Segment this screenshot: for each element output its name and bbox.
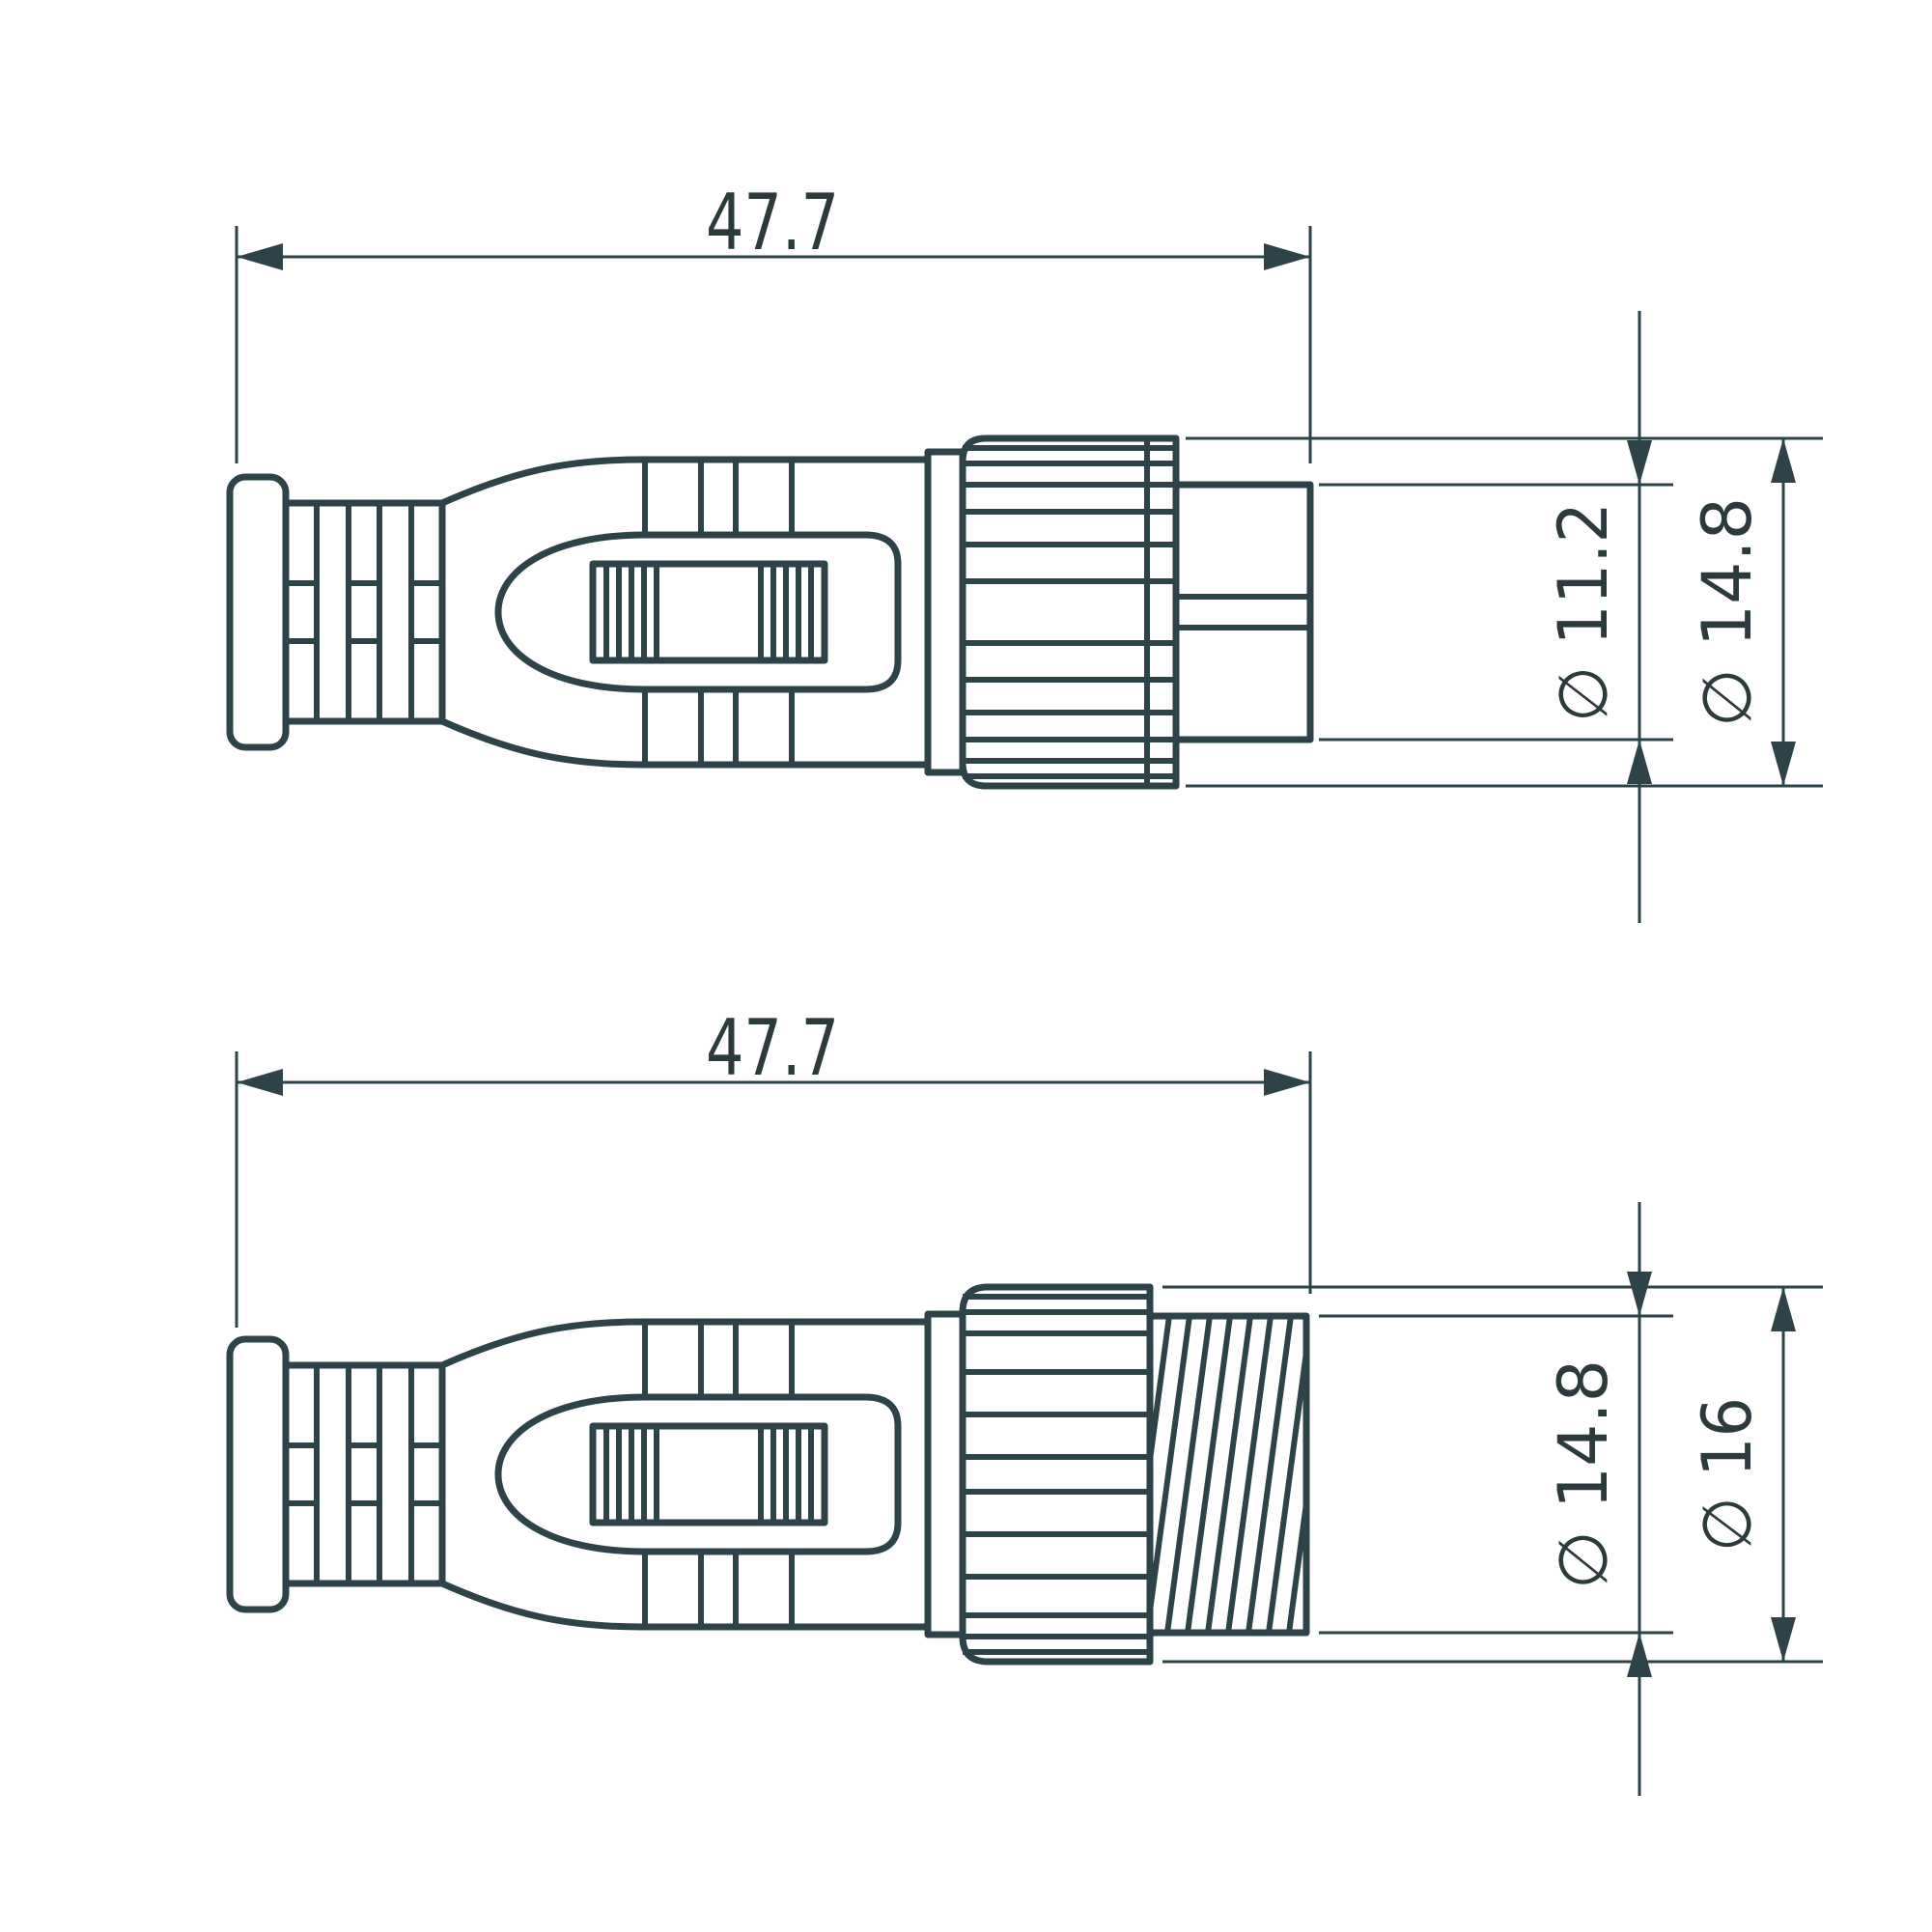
- body-ridges: [645, 1322, 792, 1627]
- top-length-dimension: 47.7: [237, 178, 1310, 463]
- technical-drawing-page: 47.7: [0, 0, 1932, 1932]
- bottom-view: 47.7: [230, 1003, 1823, 1796]
- down-arrow-icon: [1771, 742, 1796, 786]
- connector-dimension-drawing: 47.7: [0, 0, 1932, 1932]
- latch: [498, 535, 898, 689]
- top-length-dimension-label: 47.7: [706, 178, 839, 267]
- body-ridges: [645, 460, 792, 765]
- thread-hatching: [1086, 1316, 1352, 1633]
- bottom-connector: [230, 1287, 1352, 1662]
- top-outer-diameter-label: ∅ 14.8: [1688, 497, 1767, 727]
- bottom-length-dimension-label: 47.7: [706, 1003, 839, 1093]
- top-outer-diameter-dimension: ∅ 14.8: [1688, 438, 1796, 786]
- right-arrow-icon: [1264, 243, 1310, 270]
- connector-body: [442, 460, 928, 765]
- bottom-inner-diameter-dimension: ∅ 14.8: [1544, 1202, 1652, 1796]
- connector-body: [442, 1322, 928, 1627]
- body-flange: [928, 1314, 963, 1635]
- coupling-nut: [963, 1287, 1150, 1662]
- down-arrow-icon: [1627, 440, 1652, 485]
- left-arrow-icon: [237, 243, 283, 270]
- up-arrow-icon: [1771, 1287, 1796, 1331]
- down-arrow-icon: [1771, 1617, 1796, 1662]
- body-flange: [928, 452, 963, 772]
- strain-relief-ribs: [286, 503, 442, 721]
- up-arrow-icon: [1627, 740, 1652, 784]
- strain-relief-ribs: [286, 1365, 442, 1583]
- cable-end-cap: [230, 1339, 286, 1610]
- bottom-length-dimension: 47.7: [237, 1003, 1310, 1328]
- down-arrow-icon: [1627, 1272, 1652, 1316]
- bottom-outer-diameter-label: ∅ 16: [1688, 1397, 1767, 1552]
- top-diameter-dimensions: ∅ 11.2 ∅ 14.8: [1186, 311, 1823, 923]
- up-arrow-icon: [1771, 438, 1796, 483]
- bottom-inner-diameter-label: ∅ 14.8: [1544, 1359, 1623, 1589]
- bottom-diameter-dimensions: ∅ 14.8 ∅ 16: [1162, 1202, 1823, 1796]
- top-view: 47.7: [230, 178, 1823, 923]
- plug-tip: [1176, 485, 1310, 740]
- up-arrow-icon: [1627, 1633, 1652, 1677]
- left-arrow-icon: [237, 1069, 283, 1096]
- top-inner-diameter-dimension: ∅ 11.2: [1544, 311, 1652, 923]
- cable-end-cap: [230, 477, 286, 747]
- latch: [498, 1397, 898, 1552]
- top-inner-diameter-label: ∅ 11.2: [1544, 502, 1623, 722]
- coupling-nut: [963, 438, 1176, 786]
- right-arrow-icon: [1264, 1069, 1310, 1096]
- bottom-outer-diameter-dimension: ∅ 16: [1688, 1287, 1796, 1662]
- threaded-collar: [1086, 1316, 1352, 1633]
- top-connector: [230, 438, 1310, 786]
